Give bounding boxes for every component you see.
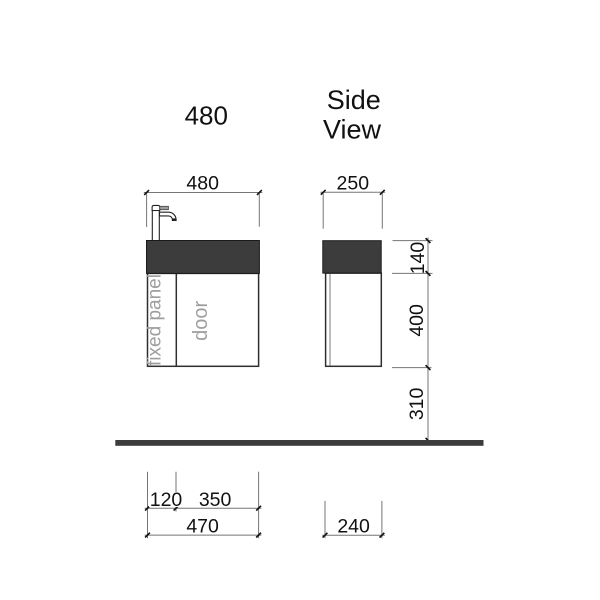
svg-text:View: View: [323, 114, 382, 144]
svg-text:400: 400: [406, 304, 428, 337]
svg-text:fixed panel: fixed panel: [145, 274, 166, 366]
svg-text:310: 310: [406, 387, 428, 420]
svg-text:Side: Side: [327, 85, 381, 115]
svg-text:240: 240: [337, 516, 370, 538]
svg-text:470: 470: [186, 516, 219, 538]
svg-text:480: 480: [185, 101, 228, 131]
svg-text:250: 250: [337, 173, 370, 195]
svg-text:480: 480: [186, 173, 219, 195]
svg-text:door: door: [190, 300, 212, 340]
svg-text:120: 120: [150, 489, 183, 511]
svg-text:140: 140: [407, 242, 429, 275]
svg-text:350: 350: [199, 489, 232, 511]
